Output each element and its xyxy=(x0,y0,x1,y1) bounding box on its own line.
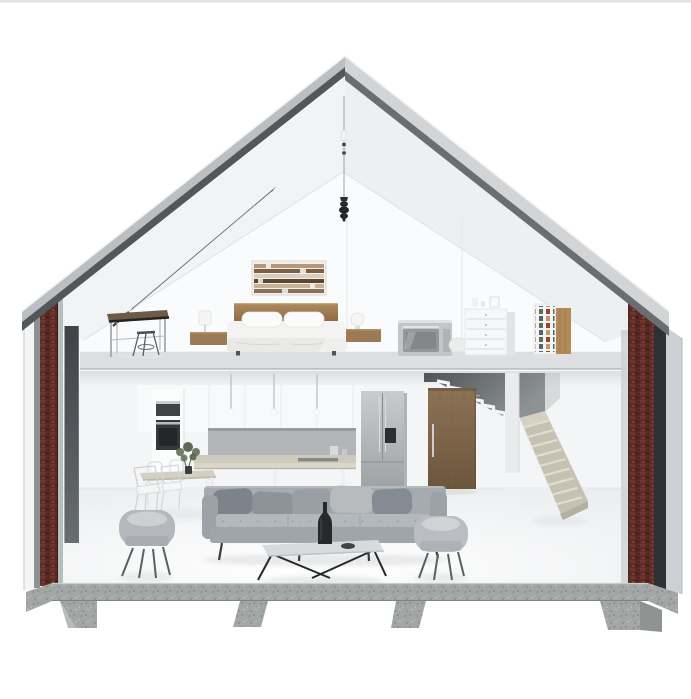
wall-art xyxy=(252,261,326,295)
bed-pillow-left xyxy=(242,312,282,327)
armchair-right-seat-face xyxy=(420,541,462,551)
nightstand-right-body xyxy=(346,329,381,342)
top-border-line xyxy=(0,0,691,3)
left-wall-outer-face xyxy=(24,316,34,590)
dresser-photo-frame xyxy=(490,297,499,307)
armchair-left-seat-face xyxy=(125,536,169,546)
bowl xyxy=(341,543,355,549)
bed xyxy=(227,303,346,356)
right-wall-outer-face xyxy=(666,327,682,594)
nightstand-left xyxy=(190,332,227,345)
stairs-floor-shadow xyxy=(533,517,587,526)
door-top-shadow xyxy=(428,388,476,391)
right-wall-dark-gap xyxy=(654,317,666,590)
fridge-side-shade xyxy=(404,393,407,488)
island-edge xyxy=(194,463,356,468)
stair-spine-wall xyxy=(505,373,519,473)
pendant-lamp-tier-1 xyxy=(340,201,348,207)
bed-pillow-right xyxy=(284,312,324,327)
wall-oven-handle xyxy=(156,422,180,425)
throw-pillow-4 xyxy=(330,485,375,514)
lamp-left-shade xyxy=(199,311,211,325)
fridge-dispenser xyxy=(385,428,396,443)
nightstand-left-body xyxy=(190,332,227,345)
pendant-bead-2 xyxy=(342,148,345,151)
chair-seat xyxy=(162,482,182,491)
dresser-vase-2 xyxy=(481,301,485,307)
lamp-right-globe xyxy=(351,313,364,326)
plant-leaf-2 xyxy=(183,442,193,452)
bed-leg-right xyxy=(332,351,336,356)
wall-oven-window xyxy=(159,428,177,446)
towel-roll xyxy=(449,338,467,352)
sofa-shadow xyxy=(203,554,447,566)
pendant-lamp-tier-2 xyxy=(339,207,349,214)
nightstand-right xyxy=(346,329,381,342)
counter-jar xyxy=(342,449,347,455)
render-canvas xyxy=(0,0,691,699)
left-wall-inner-strip xyxy=(58,293,63,586)
plant-pot xyxy=(185,466,192,474)
armchair-left-cushion xyxy=(127,512,167,527)
house-cutaway-render xyxy=(0,0,691,699)
stool-seat xyxy=(137,332,155,333)
microwave-control-panel xyxy=(443,329,450,352)
backsplash-top-shadow xyxy=(208,428,356,431)
pendant-lamp-tier-3 xyxy=(340,213,348,219)
pendant-lamp-tip xyxy=(343,219,346,222)
plant-leaf-4 xyxy=(181,455,188,462)
dresser-side xyxy=(507,312,515,355)
right-wall-corner-shade xyxy=(621,330,628,588)
door-edge-shadow xyxy=(475,388,477,489)
built-in-microwave-trim xyxy=(156,401,180,404)
island-hob xyxy=(298,458,338,462)
pendant-bead-1 xyxy=(342,143,345,146)
pendant-mount xyxy=(341,130,347,141)
right-brick-core xyxy=(628,299,654,588)
wooden-door xyxy=(426,388,478,495)
ground-floor xyxy=(63,371,626,586)
dresser-vase-1 xyxy=(472,298,478,307)
kettle xyxy=(330,446,338,455)
armchair-right-cushion xyxy=(422,517,460,531)
lamp-right-base xyxy=(355,326,360,329)
refrigerator xyxy=(361,391,407,490)
throw-pillow-1 xyxy=(212,488,254,517)
right-wall xyxy=(621,299,682,594)
bed-leg-left xyxy=(236,351,240,356)
foundation-slab xyxy=(52,583,648,601)
throw-pillow-5 xyxy=(371,488,412,516)
media-shelf xyxy=(534,304,571,354)
pendant-bead-3 xyxy=(342,152,345,155)
pendant-lamp-neck xyxy=(340,197,348,201)
shelf-spines xyxy=(536,306,555,352)
plant-leaf-5 xyxy=(190,454,197,461)
left-wall-sheathing xyxy=(34,311,40,588)
left-glass-panel xyxy=(64,326,79,543)
microwave-oven xyxy=(398,320,452,356)
armchair-right-shadow xyxy=(414,573,468,583)
wood-panel xyxy=(556,308,571,354)
left-brick-core xyxy=(40,297,58,586)
armchair-left-shadow xyxy=(119,572,173,582)
